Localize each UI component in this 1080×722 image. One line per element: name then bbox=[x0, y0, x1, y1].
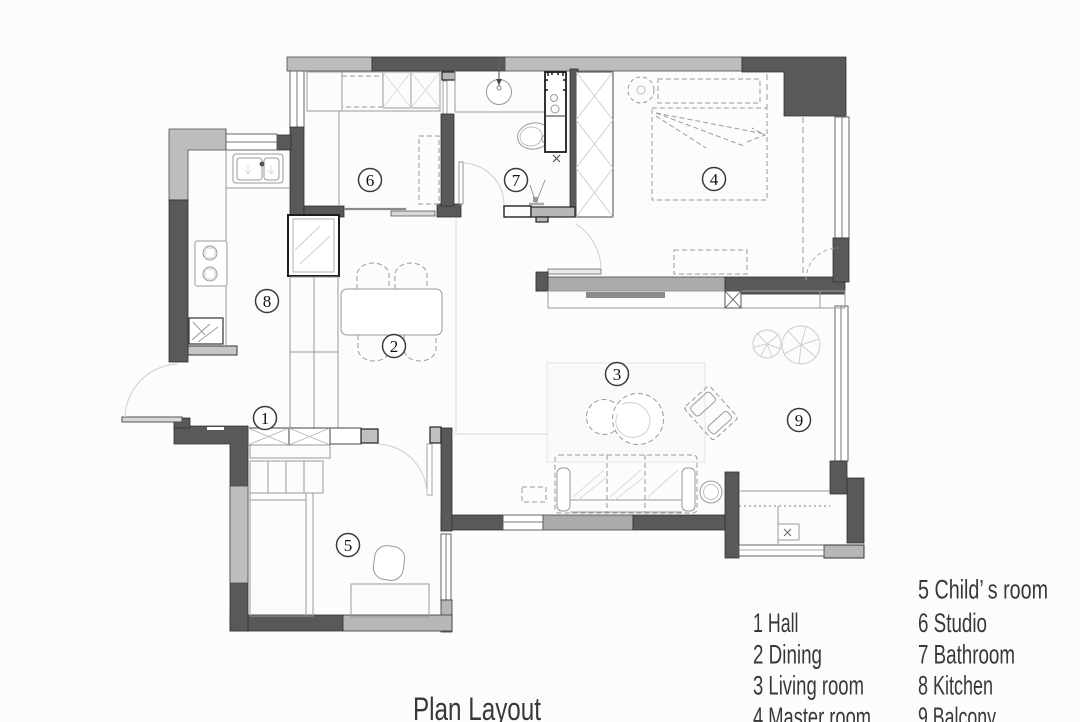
svg-text:6: 6 bbox=[366, 171, 375, 190]
svg-text:8 Kitchen: 8 Kitchen bbox=[918, 671, 993, 701]
svg-text:3 Living room: 3 Living room bbox=[753, 671, 864, 701]
svg-text:7 Bathroom: 7 Bathroom bbox=[918, 640, 1015, 670]
svg-text:2 Dining: 2 Dining bbox=[753, 640, 822, 670]
svg-text:9: 9 bbox=[795, 411, 804, 430]
svg-text:8: 8 bbox=[263, 292, 272, 311]
svg-text:4 Master room: 4 Master room bbox=[753, 702, 871, 722]
svg-text:7: 7 bbox=[512, 171, 521, 190]
svg-text:5: 5 bbox=[344, 536, 353, 555]
svg-text:1 Hall: 1 Hall bbox=[753, 608, 799, 638]
svg-text:Plan Layout: Plan Layout bbox=[413, 691, 541, 722]
svg-text:2: 2 bbox=[390, 337, 399, 356]
svg-text:9 Balcony: 9 Balcony bbox=[918, 702, 996, 722]
svg-text:5 Child’ s room: 5 Child’ s room bbox=[918, 575, 1048, 605]
svg-text:6 Studio: 6 Studio bbox=[918, 608, 987, 638]
svg-text:1: 1 bbox=[261, 409, 270, 428]
svg-text:4: 4 bbox=[710, 170, 719, 189]
svg-text:3: 3 bbox=[613, 365, 622, 384]
